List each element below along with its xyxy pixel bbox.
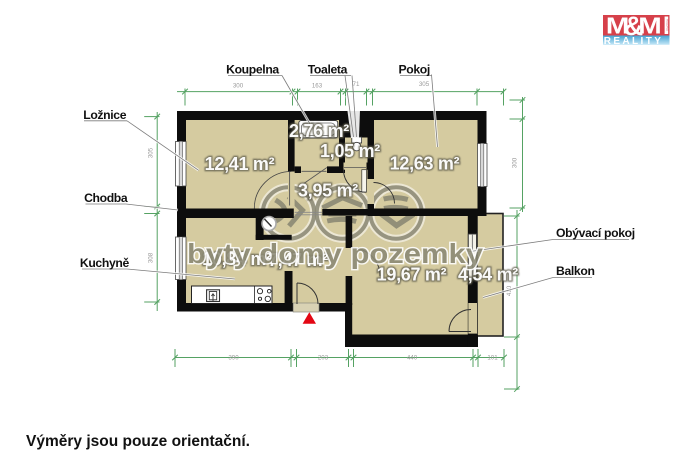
svg-text:Výměry jsou pouze orientační.: Výměry jsou pouze orientační. (26, 433, 250, 450)
svg-text:71: 71 (353, 81, 360, 88)
svg-text:REALITY: REALITY (604, 36, 664, 47)
svg-text:Pokoj: Pokoj (398, 63, 429, 77)
svg-text:Balkon: Balkon (556, 264, 595, 278)
svg-text:byty domy pozemky: byty domy pozemky (187, 238, 484, 269)
svg-text:101: 101 (487, 355, 498, 362)
svg-text:305: 305 (148, 147, 155, 158)
svg-text:440: 440 (407, 355, 418, 362)
svg-text:390: 390 (228, 355, 239, 362)
svg-text:Kuchyně: Kuchyně (80, 256, 130, 270)
svg-text:Obývací pokoj: Obývací pokoj (556, 226, 635, 240)
svg-text:2,76 m²: 2,76 m² (289, 121, 349, 141)
svg-text:HOLDING: HOLDING (666, 19, 670, 31)
svg-text:305: 305 (419, 81, 430, 88)
svg-text:12,41 m²: 12,41 m² (205, 154, 275, 174)
svg-text:308: 308 (148, 252, 155, 263)
svg-text:163: 163 (312, 83, 323, 90)
svg-text:3,95 m²: 3,95 m² (298, 181, 358, 201)
svg-text:Ložnice: Ložnice (83, 108, 126, 122)
svg-text:203: 203 (318, 355, 329, 362)
svg-text:Chodba: Chodba (84, 191, 128, 205)
svg-text:Toaleta: Toaleta (308, 63, 348, 77)
svg-text:300: 300 (512, 157, 519, 168)
svg-text:300: 300 (233, 83, 244, 90)
svg-text:1,05 m²: 1,05 m² (320, 141, 380, 161)
svg-text:Koupelna: Koupelna (226, 63, 279, 77)
svg-text:12,63 m²: 12,63 m² (390, 154, 460, 174)
